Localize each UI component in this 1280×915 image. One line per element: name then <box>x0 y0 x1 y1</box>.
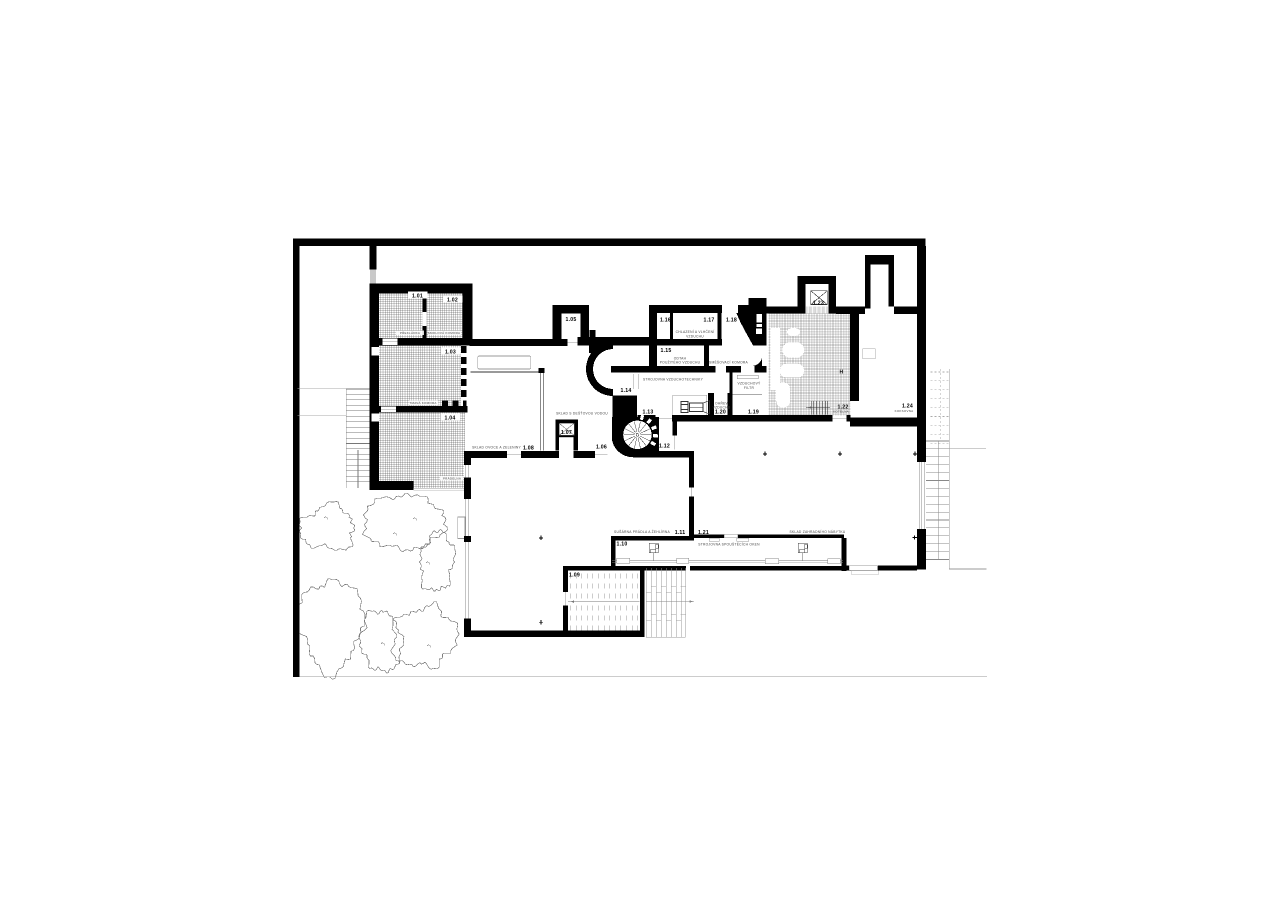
svg-text:PŘEKLÁDKA: PŘEKLÁDKA <box>400 330 420 335</box>
svg-text:SMOLOVÁ KOMORA: SMOLOVÁ KOMORA <box>428 331 461 335</box>
svg-text:SKLAD ZAHRADNÍHO NÁBYTKU: SKLAD ZAHRADNÍHO NÁBYTKU <box>789 530 845 534</box>
svg-text:1.19: 1.19 <box>748 410 759 416</box>
svg-text:1.18: 1.18 <box>726 318 737 324</box>
svg-text:1.21: 1.21 <box>698 530 709 536</box>
svg-text:1.23: 1.23 <box>813 301 824 307</box>
svg-text:STROJOVNA SPOUŠTĚCÍCH OKEN: STROJOVNA SPOUŠTĚCÍCH OKEN <box>698 541 760 546</box>
svg-text:1.08: 1.08 <box>523 446 534 452</box>
svg-text:STROJOVNA VZDUCHOTECHNIKY: STROJOVNA VZDUCHOTECHNIKY <box>643 378 704 382</box>
svg-text:1.14: 1.14 <box>621 388 632 394</box>
svg-text:1.15: 1.15 <box>661 348 672 354</box>
svg-text:CHLAZENÍ A VLHČENÍ: CHLAZENÍ A VLHČENÍ <box>676 329 715 334</box>
svg-text:VZDUCHU: VZDUCHU <box>713 406 731 410</box>
svg-text:POUŽITÉHO VZDUCHU: POUŽITÉHO VZDUCHU <box>660 360 701 365</box>
svg-text:1.16: 1.16 <box>660 318 671 324</box>
svg-text:1.11: 1.11 <box>675 530 686 536</box>
svg-text:FILTR: FILTR <box>744 386 755 390</box>
svg-text:1.06: 1.06 <box>596 445 607 451</box>
svg-text:1.17: 1.17 <box>704 318 715 324</box>
svg-text:SKLAD S DEŠŤOVOU VODOU: SKLAD S DEŠŤOVOU VODOU <box>556 411 608 416</box>
svg-text:H: H <box>840 370 844 376</box>
svg-text:KOTELNA: KOTELNA <box>833 410 849 414</box>
svg-text:SUŠÁRNA PRÁDLA A ŽEHLÍRNA: SUŠÁRNA PRÁDLA A ŽEHLÍRNA <box>614 529 670 534</box>
svg-text:PRÁDELNA: PRÁDELNA <box>443 477 461 481</box>
svg-text:1.03: 1.03 <box>445 350 456 356</box>
svg-text:1.04: 1.04 <box>445 416 456 422</box>
svg-text:SMĚŠOVACÍ KOMORA: SMĚŠOVACÍ KOMORA <box>709 360 748 365</box>
svg-text:SKLAD OVOCE A ZELENINY: SKLAD OVOCE A ZELENINY <box>472 446 521 450</box>
svg-text:1.01: 1.01 <box>412 294 423 300</box>
svg-text:VZDUCHU: VZDUCHU <box>686 335 704 339</box>
svg-text:1.10: 1.10 <box>617 542 628 548</box>
svg-text:1.20: 1.20 <box>715 410 726 416</box>
svg-text:1.02: 1.02 <box>447 298 458 304</box>
svg-text:1.05: 1.05 <box>566 317 577 323</box>
svg-text:1.09: 1.09 <box>569 573 580 579</box>
svg-text:1.12: 1.12 <box>659 444 670 450</box>
svg-text:1.07: 1.07 <box>561 430 572 436</box>
svg-text:KOKSOVNA: KOKSOVNA <box>895 409 914 413</box>
svg-text:TMAVÁ KOMORA: TMAVÁ KOMORA <box>409 401 436 405</box>
svg-text:1.13: 1.13 <box>643 410 654 416</box>
